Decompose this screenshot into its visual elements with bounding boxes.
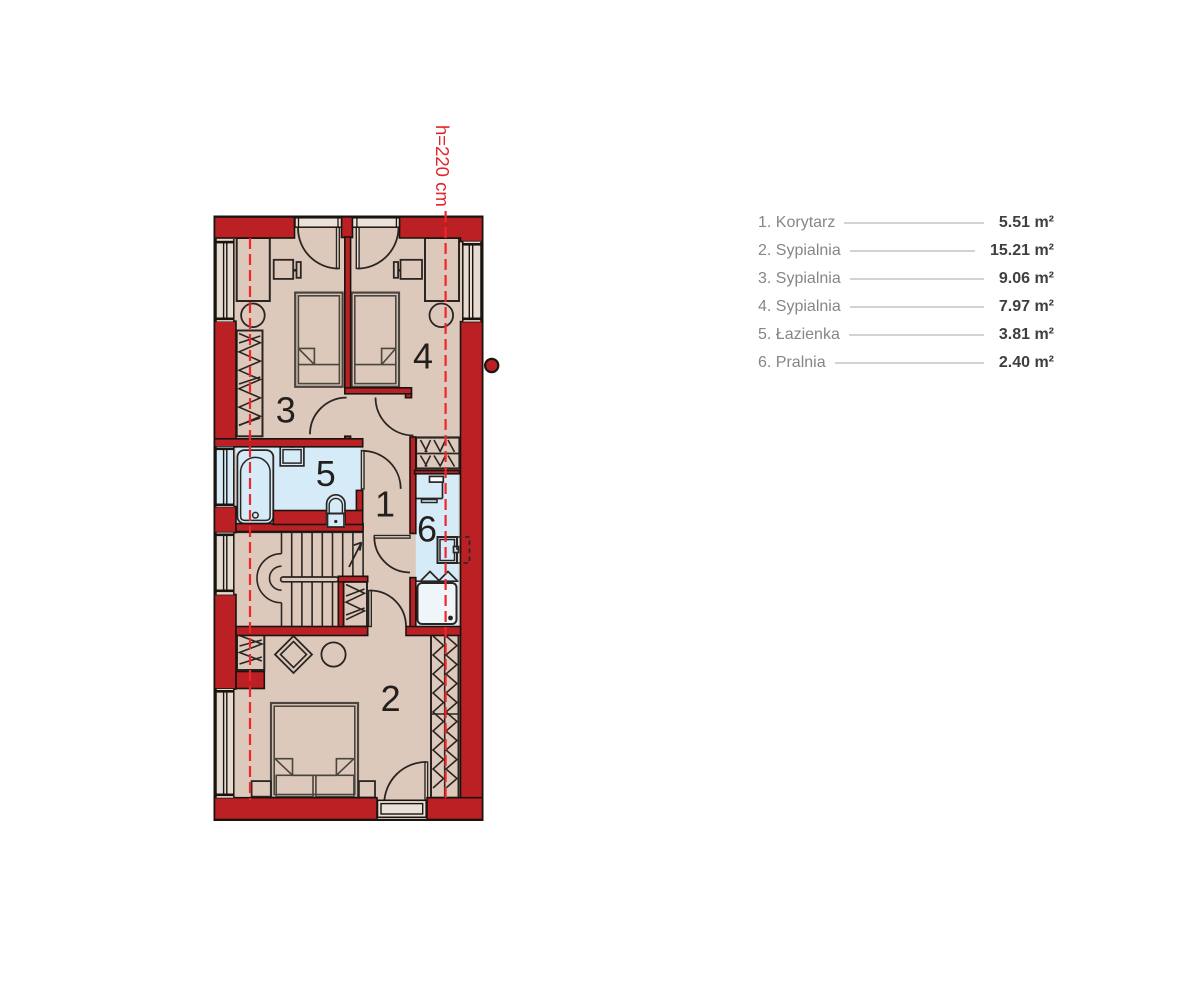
svg-text:3: 3 [276,390,296,431]
svg-text:4: 4 [413,336,433,377]
svg-text:1: 1 [375,483,395,524]
svg-text:2: 2 [381,678,401,719]
svg-text:5: 5 [316,453,336,494]
svg-text:6: 6 [417,509,437,550]
